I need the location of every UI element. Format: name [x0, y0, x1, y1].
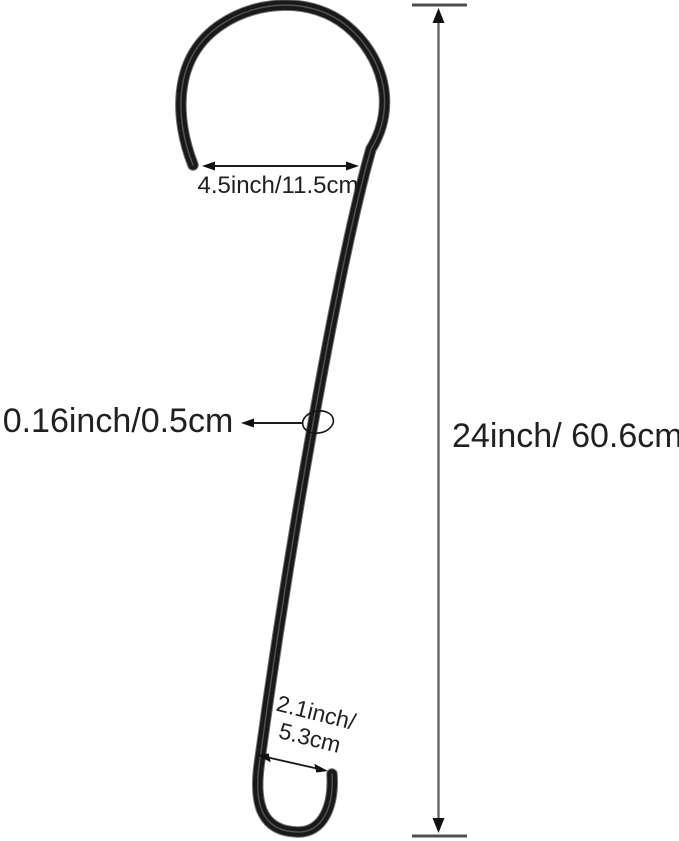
top-width-arrow	[202, 162, 359, 171]
wire-thickness-label: 0.16inch/0.5cm	[0, 402, 236, 440]
arrowhead-down-icon	[433, 818, 445, 833]
arrowhead-right-icon	[314, 764, 328, 773]
bottom-hook-arrow	[257, 754, 328, 773]
arrowhead-right-icon	[346, 162, 359, 171]
thickness-callout	[241, 408, 335, 435]
arrowhead-left-icon	[202, 162, 215, 171]
product-dimension-diagram: 4.5inch/11.5cm 0.16inch/0.5cm 24inch/ 60…	[0, 0, 679, 841]
bottom-hook-arrow-line	[266, 757, 319, 769]
hook-opening-label: 4.5inch/11.5cm	[196, 172, 360, 200]
overall-length-label: 24inch/ 60.6cm	[452, 417, 679, 455]
arrowhead-up-icon	[433, 8, 445, 23]
arrowhead-left-icon	[241, 419, 254, 428]
